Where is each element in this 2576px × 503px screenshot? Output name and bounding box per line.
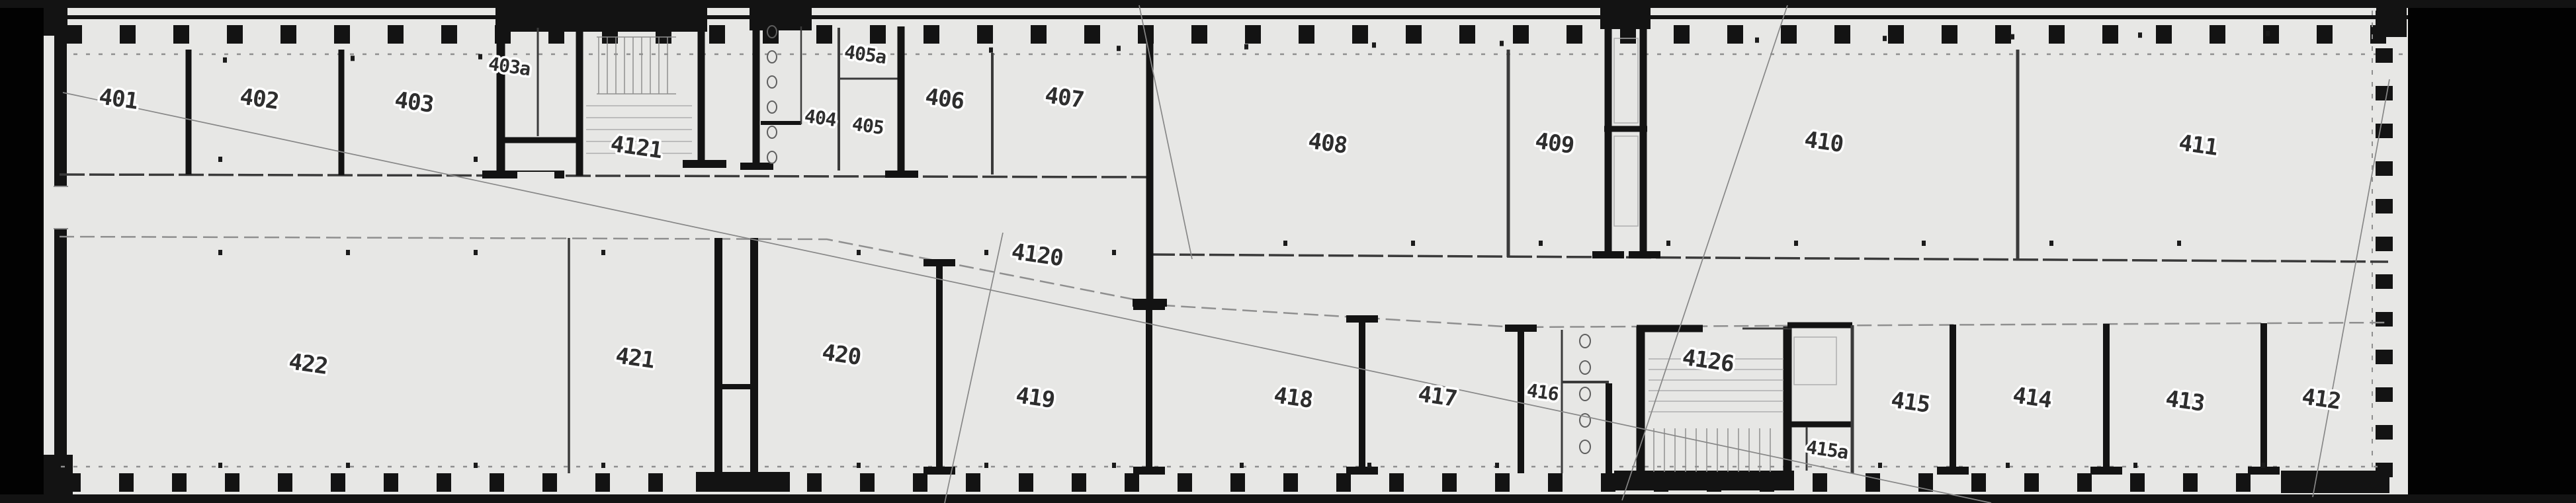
- room-label-413: 413: [2164, 385, 2206, 417]
- room-label-403: 403: [393, 87, 435, 118]
- floor-slab: [44, 5, 2408, 496]
- room-label-418: 418: [1272, 382, 1314, 414]
- room-label-407: 407: [1043, 82, 1085, 114]
- room-label-420: 420: [820, 339, 862, 371]
- room-label-405: 405: [851, 113, 885, 139]
- room-label-402: 402: [238, 83, 280, 115]
- room-label-408: 408: [1307, 128, 1348, 159]
- room-label-416: 416: [1525, 379, 1560, 405]
- room-label-410: 410: [1803, 126, 1844, 158]
- room-label-421: 421: [614, 342, 656, 374]
- room-label-419: 419: [1014, 382, 1056, 414]
- room-label-411: 411: [2177, 130, 2219, 161]
- room-label-417: 417: [1416, 381, 1458, 412]
- room-label-406: 406: [923, 83, 965, 115]
- room-label-412: 412: [2300, 383, 2342, 415]
- room-label-422: 422: [287, 348, 329, 380]
- room-label-401: 401: [97, 83, 139, 115]
- scanned-floorplan-page: 401402403403a4121404405405a4064074084094…: [0, 0, 2576, 503]
- room-label-409: 409: [1533, 128, 1575, 159]
- room-label-414: 414: [2011, 382, 2053, 414]
- room-label-415: 415: [1889, 387, 1931, 418]
- floor-plan-canvas: 401402403403a4121404405405a4064074084094…: [0, 0, 2576, 503]
- room-label-404: 404: [803, 105, 837, 131]
